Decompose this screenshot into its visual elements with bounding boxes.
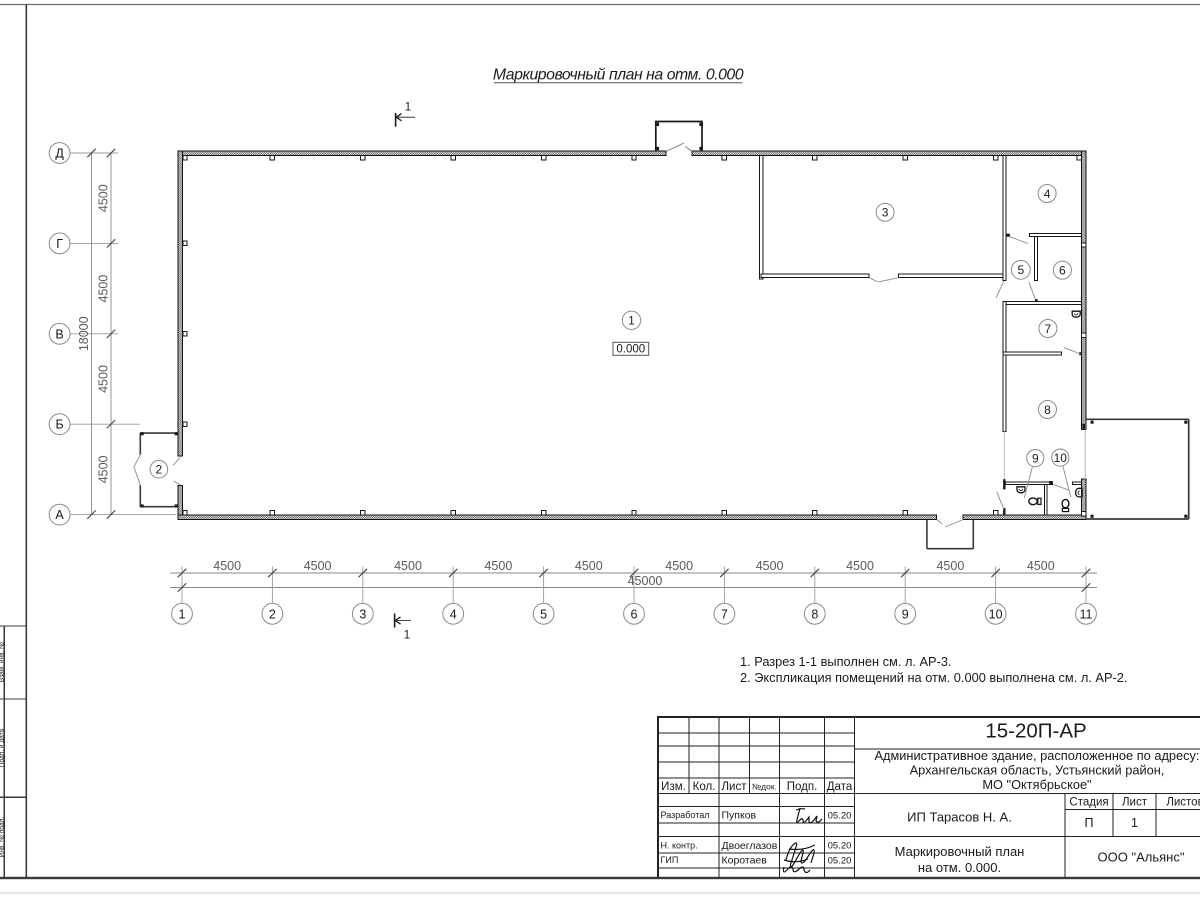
svg-text:2. Экспликация помещений на от: 2. Экспликация помещений на отм. 0.000 в…	[740, 670, 1127, 685]
svg-text:4500: 4500	[394, 559, 422, 573]
svg-text:4500: 4500	[304, 559, 332, 573]
svg-text:4500: 4500	[97, 365, 111, 393]
svg-text:9: 9	[902, 607, 909, 621]
svg-text:В: В	[55, 327, 63, 341]
svg-text:№док.: №док.	[752, 782, 777, 792]
svg-text:Маркировочный план на отм. 0.0: Маркировочный план на отм. 0.000	[493, 66, 744, 83]
svg-text:Изм.: Изм.	[661, 781, 686, 793]
svg-text:0.000: 0.000	[616, 344, 645, 356]
svg-text:Архангельская область, Устьянс: Архангельская область, Устьянский район,	[910, 763, 1165, 778]
svg-text:Лист: Лист	[722, 781, 748, 793]
svg-text:4500: 4500	[846, 559, 874, 573]
svg-text:Маркировочный план: Маркировочный план	[895, 844, 1025, 859]
svg-text:Инв. № подл.: Инв. № подл.	[0, 817, 5, 858]
svg-text:Г: Г	[56, 237, 63, 251]
svg-text:Взам. инв. №: Взам. инв. №	[0, 642, 5, 682]
svg-text:05.20: 05.20	[828, 811, 852, 822]
svg-text:4500: 4500	[97, 455, 111, 483]
svg-text:1: 1	[1131, 816, 1138, 830]
svg-text:6: 6	[631, 607, 638, 621]
svg-text:7: 7	[721, 607, 728, 621]
svg-text:4500: 4500	[213, 559, 241, 573]
svg-text:05.20: 05.20	[828, 856, 852, 867]
svg-text:05.20: 05.20	[828, 841, 852, 852]
svg-text:Листов: Листов	[1166, 797, 1200, 809]
svg-text:4500: 4500	[97, 275, 111, 303]
svg-text:Административное здание, распо: Административное здание, расположенное п…	[874, 748, 1199, 763]
svg-text:4: 4	[1044, 187, 1051, 201]
svg-text:4500: 4500	[756, 559, 784, 573]
svg-text:1: 1	[179, 607, 186, 621]
svg-text:Лист: Лист	[1122, 797, 1148, 809]
svg-text:4500: 4500	[484, 559, 512, 573]
svg-text:ИП Тарасов Н. А.: ИП Тарасов Н. А.	[907, 810, 1012, 825]
svg-text:4500: 4500	[97, 184, 111, 212]
svg-text:МО "Октябрьское": МО "Октябрьское"	[982, 777, 1091, 792]
svg-text:Н. контр.: Н. контр.	[661, 841, 698, 851]
svg-text:ООО "Альянс": ООО "Альянс"	[1098, 850, 1185, 865]
svg-text:1: 1	[405, 102, 411, 114]
svg-text:А: А	[55, 508, 64, 522]
svg-text:8: 8	[811, 607, 818, 621]
svg-text:Кол.: Кол.	[693, 781, 716, 793]
svg-text:2: 2	[269, 607, 276, 621]
svg-text:8: 8	[1044, 403, 1051, 417]
svg-text:1: 1	[628, 314, 635, 328]
svg-text:на отм. 0.000.: на отм. 0.000.	[918, 860, 1001, 875]
svg-text:7: 7	[1045, 322, 1052, 336]
svg-text:Подп.: Подп.	[787, 781, 818, 793]
svg-text:10: 10	[1054, 451, 1068, 465]
svg-text:6: 6	[1059, 263, 1066, 277]
svg-text:1. Разрез 1-1 выполнен см. л.: 1. Разрез 1-1 выполнен см. л. АР-3.	[740, 654, 952, 669]
svg-text:1: 1	[404, 630, 410, 642]
svg-text:Стадия: Стадия	[1069, 797, 1108, 809]
svg-text:3: 3	[359, 607, 366, 621]
svg-text:2: 2	[156, 463, 163, 477]
svg-text:Дата: Дата	[827, 781, 853, 793]
svg-text:П: П	[1085, 816, 1094, 830]
svg-text:4500: 4500	[575, 559, 603, 573]
svg-text:9: 9	[1032, 451, 1039, 465]
svg-text:15-20П-АР: 15-20П-АР	[985, 720, 1086, 743]
svg-text:5: 5	[540, 607, 547, 621]
svg-text:5: 5	[1017, 263, 1024, 277]
svg-text:Разработал: Разработал	[661, 810, 710, 820]
svg-text:4500: 4500	[936, 559, 964, 573]
svg-text:10: 10	[989, 607, 1003, 621]
svg-text:Пупков: Пупков	[722, 810, 757, 822]
svg-text:4500: 4500	[1027, 559, 1055, 573]
svg-text:Б: Б	[55, 418, 63, 432]
svg-text:Двоеглазов: Двоеглазов	[722, 840, 778, 852]
svg-text:45000: 45000	[628, 574, 663, 588]
svg-text:4: 4	[450, 607, 457, 621]
svg-text:Коротаев: Коротаев	[722, 855, 768, 867]
svg-text:3: 3	[882, 206, 889, 220]
svg-text:Подп. и дата: Подп. и дата	[0, 728, 5, 767]
svg-text:Д: Д	[55, 147, 64, 161]
svg-text:ГИП: ГИП	[661, 855, 679, 865]
svg-text:4500: 4500	[665, 559, 693, 573]
svg-text:11: 11	[1080, 607, 1093, 621]
svg-text:18000: 18000	[77, 316, 91, 351]
